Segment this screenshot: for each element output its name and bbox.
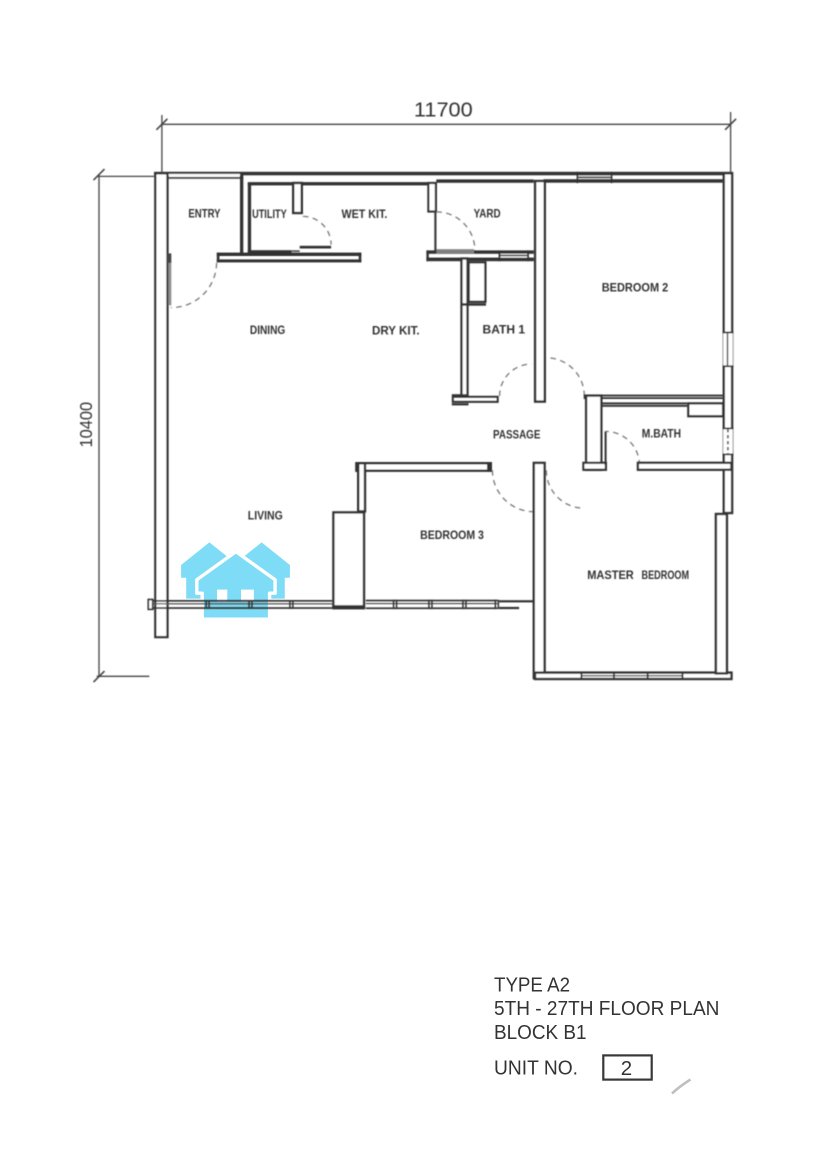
svg-text:11700: 11700 bbox=[414, 99, 473, 122]
svg-text:5TH - 27TH FLOOR PLAN: 5TH - 27TH FLOOR PLAN bbox=[494, 997, 719, 1020]
svg-text:PASSAGE: PASSAGE bbox=[493, 430, 541, 442]
svg-text:YARD: YARD bbox=[474, 209, 501, 221]
svg-text:10400: 10400 bbox=[76, 402, 96, 448]
svg-text:LIVING: LIVING bbox=[248, 511, 283, 523]
svg-text:BEDROOM 3: BEDROOM 3 bbox=[420, 530, 484, 542]
svg-text:MASTER: MASTER bbox=[587, 570, 634, 582]
svg-text:M.BATH: M.BATH bbox=[642, 429, 681, 441]
svg-text:BEDROOM 2: BEDROOM 2 bbox=[602, 282, 669, 294]
svg-text:BLOCK B1: BLOCK B1 bbox=[494, 1021, 587, 1044]
svg-text:ENTRY: ENTRY bbox=[188, 209, 220, 221]
svg-text:DINING: DINING bbox=[250, 325, 285, 337]
svg-text:DRY KIT.: DRY KIT. bbox=[372, 326, 420, 338]
svg-text:TYPE A2: TYPE A2 bbox=[494, 973, 570, 996]
svg-text:2: 2 bbox=[621, 1057, 632, 1080]
svg-text:BEDROOM: BEDROOM bbox=[642, 570, 690, 582]
svg-text:WET KIT.: WET KIT. bbox=[342, 209, 388, 221]
svg-text:UTILITY: UTILITY bbox=[252, 209, 287, 221]
svg-text:BATH 1: BATH 1 bbox=[483, 325, 526, 337]
svg-text:UNIT NO.: UNIT NO. bbox=[494, 1056, 578, 1079]
